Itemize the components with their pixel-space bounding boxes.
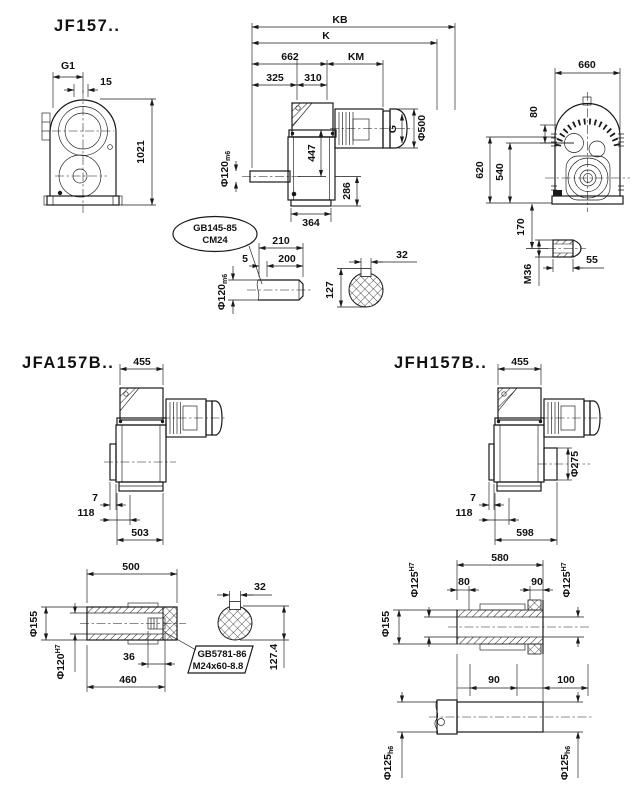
dim-170: 170 <box>515 218 527 236</box>
dim-275: Φ275 <box>569 451 581 477</box>
jfh-output-shaft: 90 100 Φ125h6 Φ125h6 <box>382 654 592 780</box>
dim-540: 540 <box>494 163 506 181</box>
dim-100: 100 <box>557 674 575 686</box>
dim-580: 580 <box>491 552 509 564</box>
dim-bore120: Φ120H7 <box>55 644 67 679</box>
dim-jfa-503: 503 <box>131 527 149 539</box>
dim-55: 55 <box>586 254 598 266</box>
dim-1021: 1021 <box>135 140 147 164</box>
dim-447: 447 <box>306 144 318 162</box>
dim-660: 660 <box>578 59 596 71</box>
dim-80b: 80 <box>458 576 470 588</box>
dim-127: 127 <box>324 281 336 299</box>
technical-drawing: JF157.. G1 15 1021 <box>0 0 636 797</box>
dim-310: 310 <box>304 72 322 84</box>
dim-jfa-7: 7 <box>92 492 98 504</box>
title-jfa157b: JFA157B.. <box>22 354 114 372</box>
dim-36: 36 <box>123 651 135 663</box>
jfa157b-view: 455 7 118 503 <box>78 356 226 545</box>
dim-shaft-dia: Φ120m6 <box>219 151 232 187</box>
dim-g: G <box>387 125 399 133</box>
dim-80: 80 <box>528 106 540 118</box>
dim-bore125-left: Φ125H7 <box>409 562 421 597</box>
dim-od155b: Φ155 <box>380 611 392 637</box>
dim-od155: Φ155 <box>28 611 40 637</box>
dim-g1: G1 <box>61 60 75 72</box>
jf157-front-view: G1 15 1021 <box>42 60 156 213</box>
callout-gb5781: GB5781-86 <box>197 649 246 660</box>
dim-200: 200 <box>278 253 296 265</box>
dim-km: KM <box>348 51 365 63</box>
title-jfh157b: JFH157B.. <box>394 354 487 372</box>
dim-kb: KB <box>332 14 348 26</box>
title-jf157: JF157.. <box>54 17 120 35</box>
hollow-shaft-detail: 500 Φ155 Φ120H7 36 460 GB5781-86 M24x60-… <box>28 561 289 692</box>
dim-364: 364 <box>302 217 320 229</box>
dim-jfh-7: 7 <box>470 492 476 504</box>
dim-90b: 90 <box>531 576 543 588</box>
dim-15: 15 <box>100 76 112 88</box>
drawing-sheet: JF157.. G1 15 1021 <box>0 0 636 797</box>
dim-460: 460 <box>119 674 137 686</box>
dim-620: 620 <box>474 161 486 179</box>
dim-90c: 90 <box>488 674 500 686</box>
dim-key-32: 32 <box>396 249 408 261</box>
dim-dia125-left: Φ125h6 <box>382 746 395 780</box>
jf157-rear-view: 660 80 620 540 170 M36 55 <box>474 59 630 286</box>
jfh157b-view: 455 Φ275 7 118 598 <box>456 356 604 545</box>
dim-662: 662 <box>281 51 299 63</box>
jfh-hollow-section: 580 80 90 Φ125H7 Φ125H7 Φ155 <box>380 552 590 654</box>
dim-fan-dia: Φ500 <box>416 115 428 141</box>
dim-jfh-598: 598 <box>516 527 534 539</box>
dim-shaft-end-dia: Φ120m6 <box>216 274 229 310</box>
dim-jfh-118: 118 <box>456 507 473 519</box>
dim-jfa-455: 455 <box>133 356 151 368</box>
dim-500: 500 <box>122 561 140 573</box>
dim-5: 5 <box>242 253 248 265</box>
dim-210: 210 <box>272 235 290 247</box>
jf157-shaft-end-detail: GB145-85 CM24 210 200 5 Φ120m6 32 127 <box>173 217 417 315</box>
dim-127-4: 127.4 <box>268 644 280 670</box>
dim-286: 286 <box>341 182 353 200</box>
dim-m36: M36 <box>522 264 534 285</box>
jf157-side-view: KB K 662 KM 325 310 447 286 364 Φ120m6 G… <box>219 14 455 229</box>
callout-gb145: GB145-85 <box>193 223 238 234</box>
callout-cm24: CM24 <box>202 235 228 246</box>
dim-k: K <box>322 30 330 42</box>
dim-key32: 32 <box>254 581 266 593</box>
dim-jfa-118: 118 <box>78 507 95 519</box>
dim-bore125-right: Φ125H7 <box>561 562 573 597</box>
dim-jfh-455: 455 <box>511 356 529 368</box>
callout-m24: M24x60-8.8 <box>193 661 244 672</box>
dim-325: 325 <box>266 72 284 84</box>
dim-dia125-right: Φ125h6 <box>559 746 572 780</box>
